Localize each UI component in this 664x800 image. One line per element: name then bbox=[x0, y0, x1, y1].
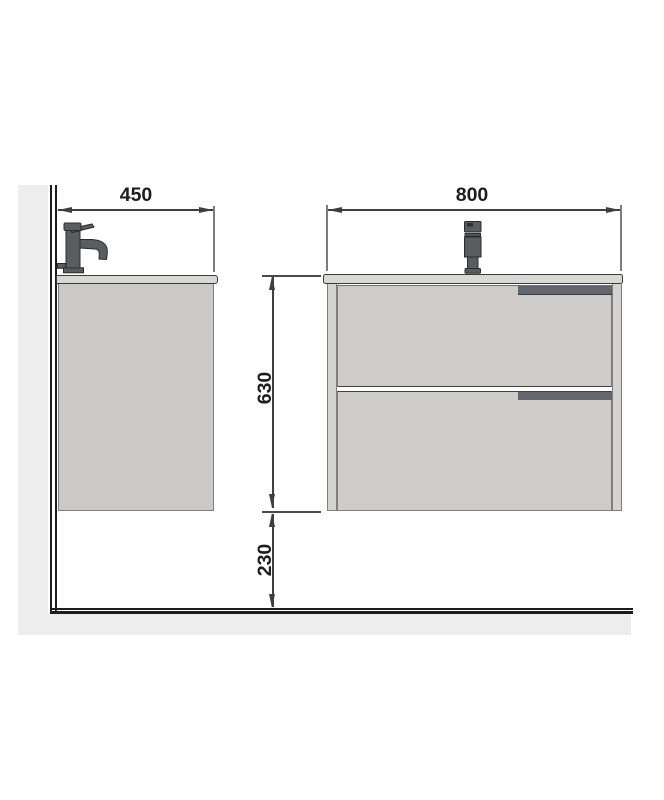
front-view-left-side-panel bbox=[327, 284, 337, 511]
dim-630-arrow-down bbox=[269, 494, 275, 508]
floor-line-upper bbox=[50, 608, 633, 610]
wall-edge-line-outer bbox=[50, 185, 52, 613]
dim-800-extension-line-right bbox=[620, 205, 622, 271]
front-view-countertop bbox=[323, 274, 624, 284]
dim-800-label: 800 bbox=[435, 185, 509, 205]
floor-surface bbox=[18, 614, 631, 635]
dim-230-label: 230 bbox=[243, 538, 287, 582]
bottom-drawer-handle-recess bbox=[518, 392, 612, 400]
side-view-countertop bbox=[56, 275, 219, 285]
faucet-front-icon bbox=[462, 220, 484, 274]
dim-630-label: 630 bbox=[243, 366, 287, 410]
drawing-canvas: 450 800 630 230 bbox=[0, 0, 664, 800]
front-view-bottom-drawer bbox=[337, 391, 613, 511]
dim-450-extension-line bbox=[213, 206, 215, 272]
top-drawer-handle-recess bbox=[518, 286, 612, 296]
dim-800-line bbox=[328, 209, 620, 211]
side-view-cabinet-body bbox=[58, 284, 214, 510]
dim-230-arrow-down bbox=[269, 594, 275, 608]
dim-450-label: 450 bbox=[99, 185, 173, 205]
dim-800-arrow-left bbox=[328, 207, 342, 213]
dim-450-arrow-left bbox=[58, 207, 72, 213]
dim-450-arrow-right bbox=[199, 207, 213, 213]
front-view-top-drawer bbox=[337, 285, 613, 388]
dim-800-extension-line-left bbox=[326, 205, 328, 271]
dim-450-line bbox=[58, 209, 213, 211]
front-view-right-side-panel bbox=[612, 284, 622, 511]
dim-630-arrow-up bbox=[269, 276, 275, 290]
dim-230-arrow-up bbox=[269, 513, 275, 527]
dim-800-arrow-right bbox=[606, 207, 620, 213]
wall-surface bbox=[18, 185, 48, 635]
faucet-side-icon bbox=[56, 221, 118, 275]
